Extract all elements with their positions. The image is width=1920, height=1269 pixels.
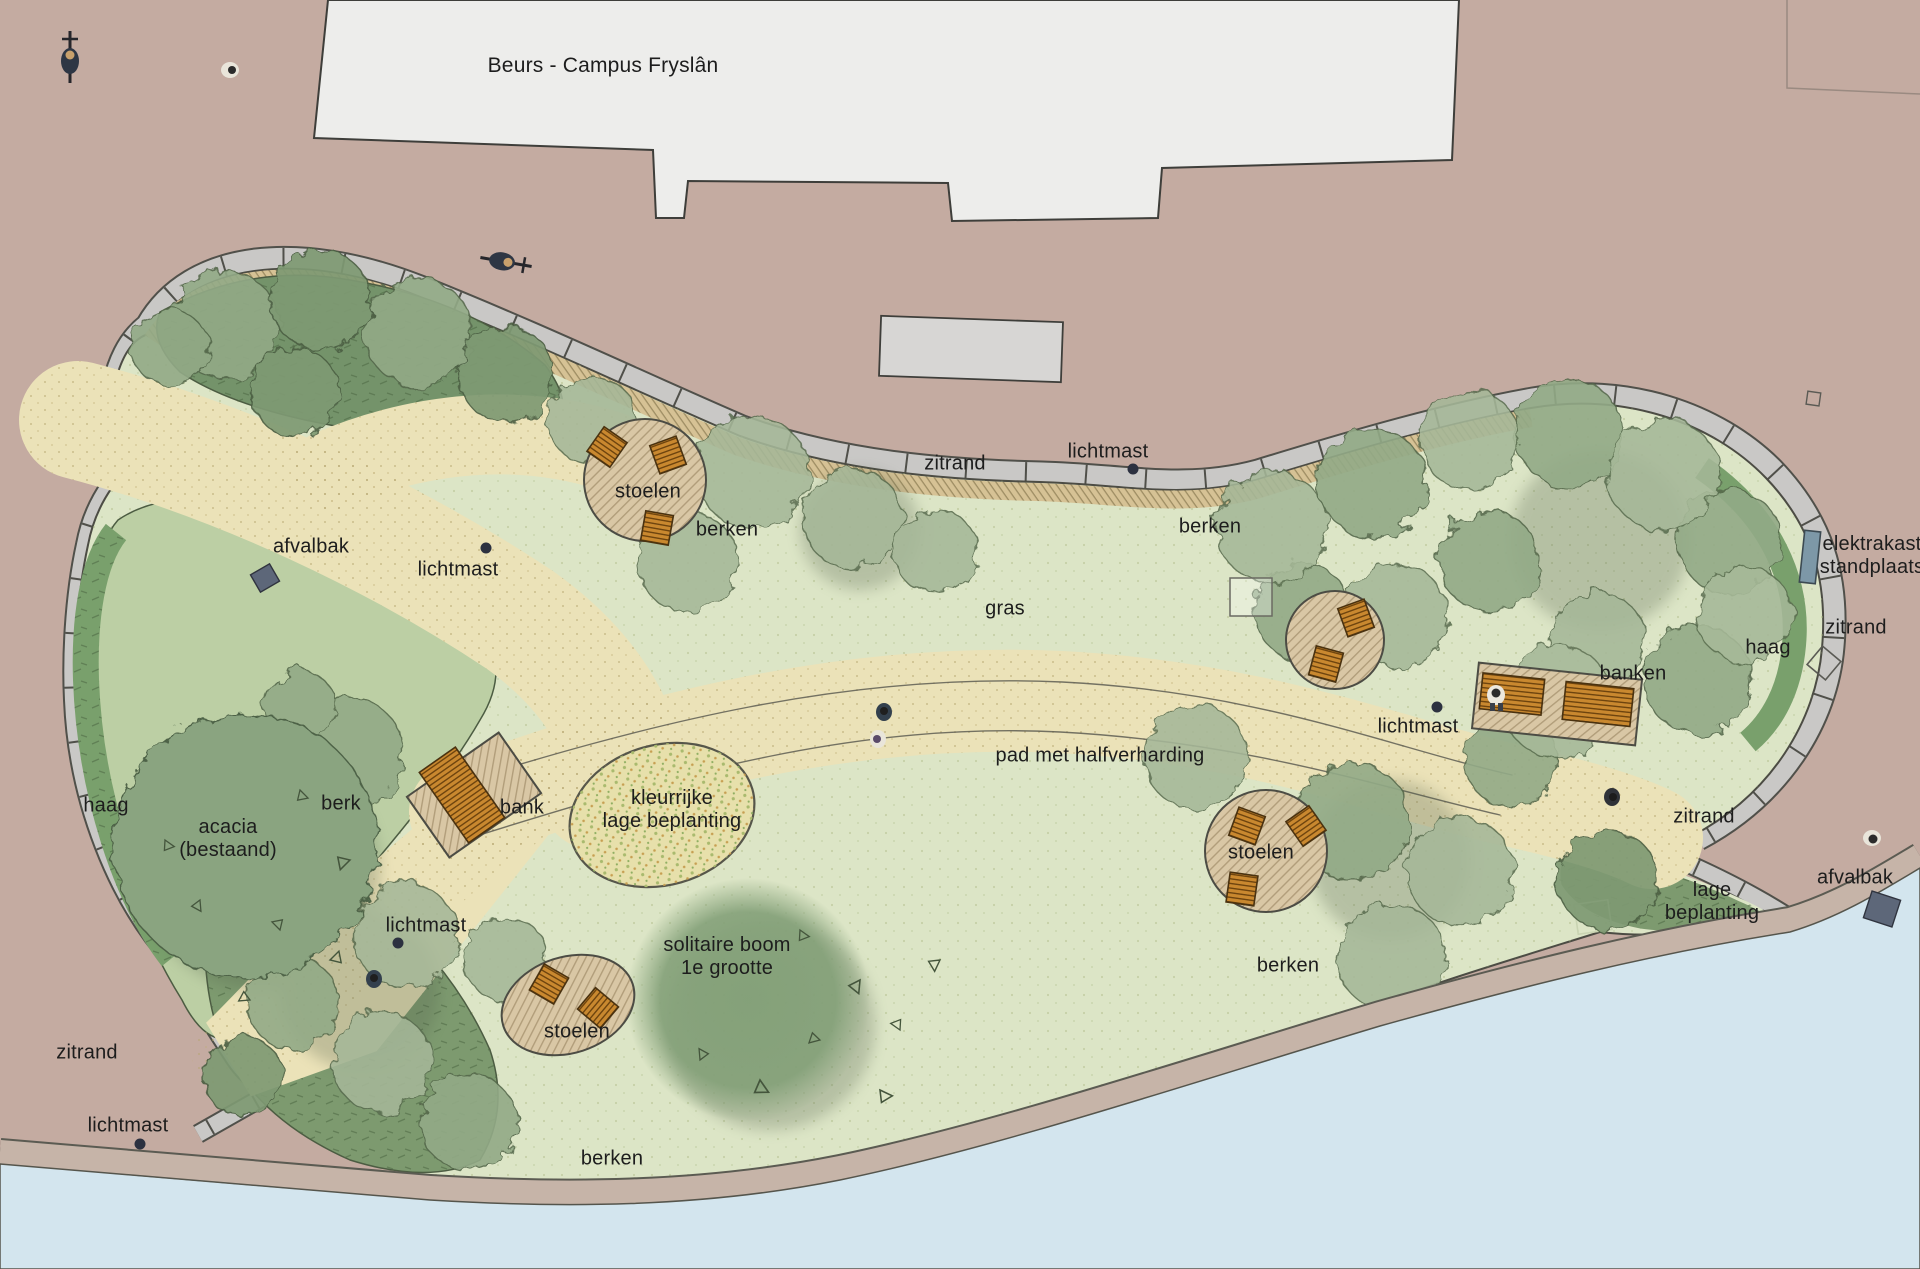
stoelen-circle-northeast: [1286, 591, 1384, 689]
pedestrian-figure: [1863, 830, 1881, 846]
pedestrian-figure: [221, 62, 239, 78]
lichtmast-dot: [135, 1139, 146, 1150]
chair-icon: [641, 511, 674, 545]
site-plan: Beurs - Campus Fryslânzitrandlichtmastbe…: [0, 0, 1920, 1269]
grass-detail-square: [1230, 578, 1272, 616]
pedestrian-figure: [1604, 788, 1620, 806]
pedestrian-figure: [366, 970, 382, 988]
chair-icon: [1226, 872, 1258, 906]
plan-drawing: [0, 0, 1920, 1269]
bench-icon: [1562, 682, 1634, 727]
acacia-tree: [113, 713, 377, 977]
lichtmast-dot: [1128, 464, 1139, 475]
stoelen-circle-east: [1205, 790, 1327, 912]
lichtmast-dot: [393, 938, 404, 949]
lichtmast-dot: [1432, 702, 1443, 713]
building-annex: [879, 316, 1063, 382]
lichtmast-dot: [481, 543, 492, 554]
pedestrian-figure: [876, 703, 892, 721]
pedestrian-figure: [870, 730, 886, 748]
